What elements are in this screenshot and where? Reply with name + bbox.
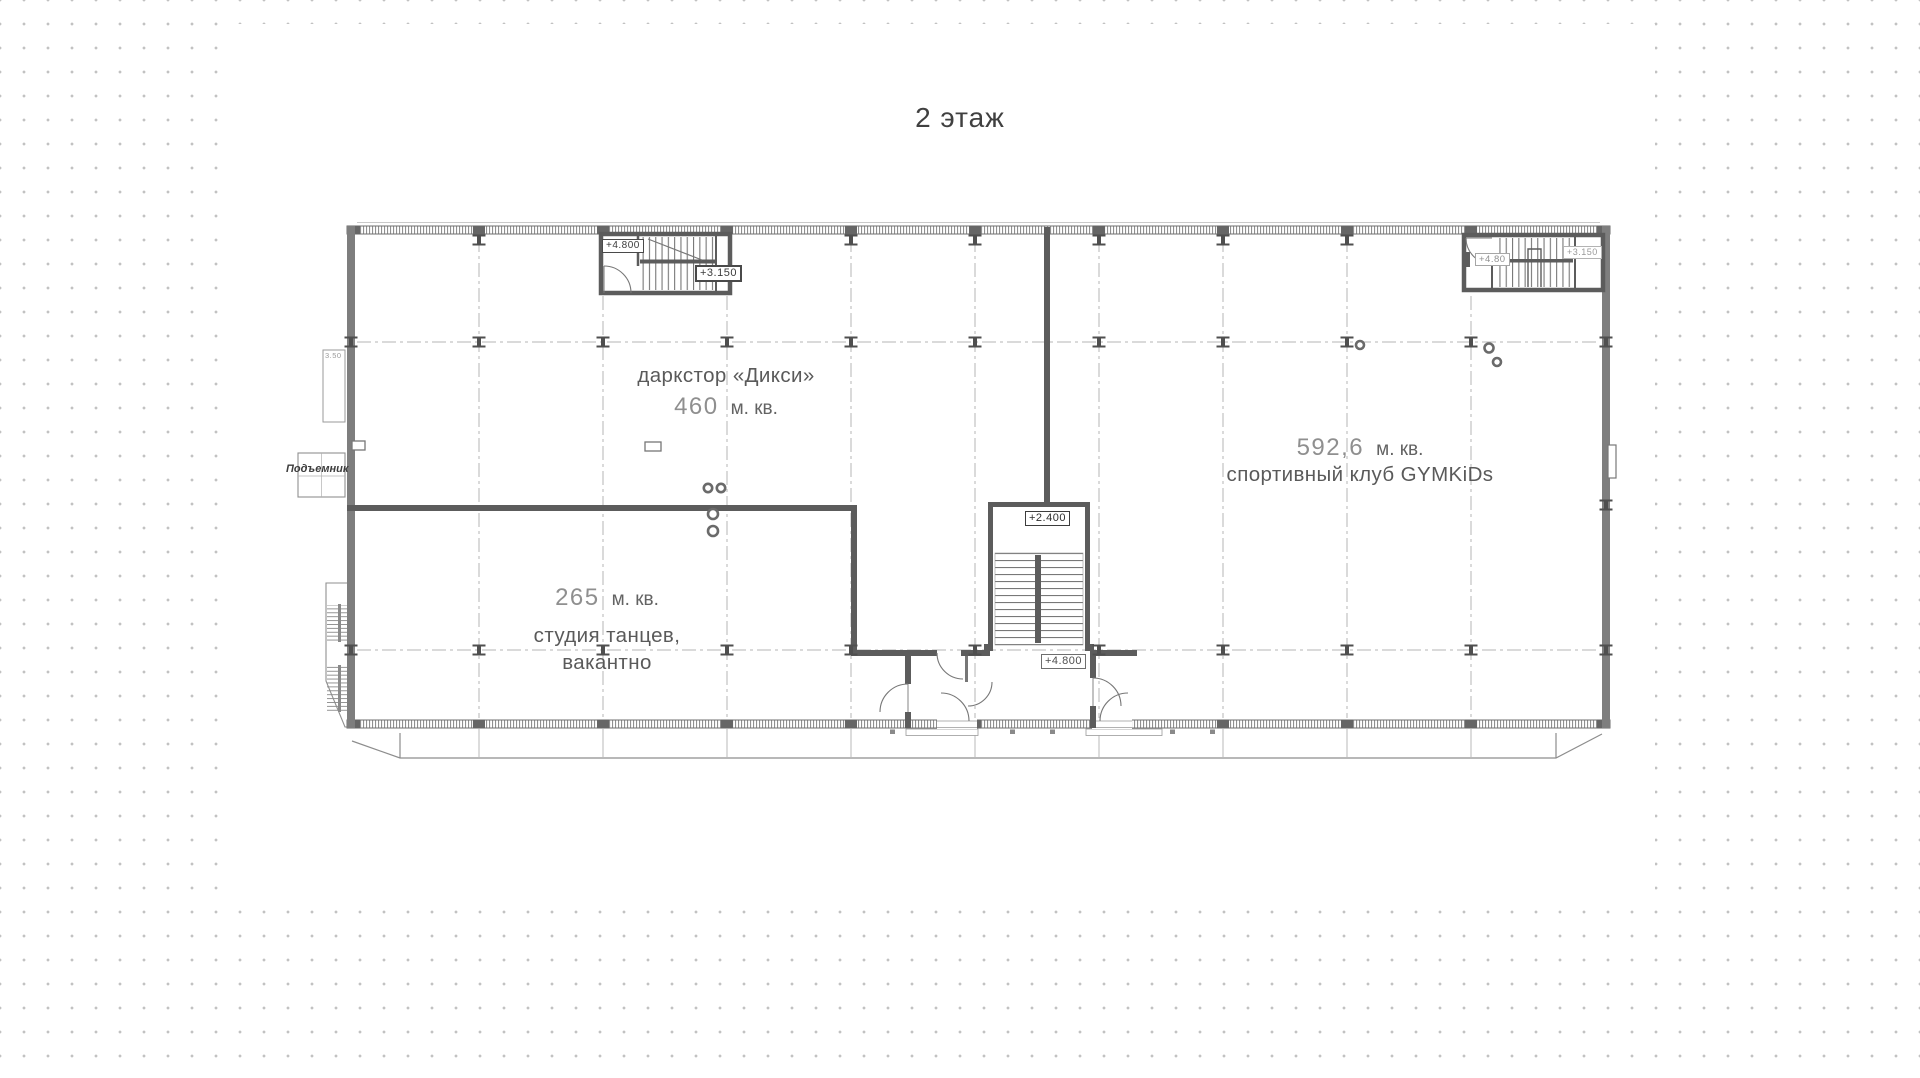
unit-label-dance-studio: 265м. кв. студия танцев, вакантно [477, 584, 737, 675]
unit-status: вакантно [477, 651, 737, 675]
floor-plan: 2 этаж [0, 0, 1920, 1078]
unit-name: студия танцев, [477, 624, 737, 648]
page: { "title": "2 этаж", "units": [ { "name"… [0, 0, 1920, 1078]
elevation-mark-tl-upper: +4.800 [602, 239, 644, 253]
entrance-porch-step [906, 729, 978, 736]
unit-name: спортивный клуб GYMKiDs [1195, 463, 1525, 487]
elevation-mark-center-upper: +2.400 [1025, 511, 1070, 526]
elevation-mark-tl-lower: +3.150 [695, 265, 742, 282]
unit-label-gymkids: 592,6м. кв. спортивный клуб GYMKiDs [1195, 434, 1525, 487]
partition-stubs [352, 441, 661, 451]
unit-label-dixy: даркстор «Дикси» 460м. кв. [586, 364, 866, 421]
lift-annotation: Подъемник [286, 463, 348, 475]
entrance-porch-step [1086, 729, 1162, 736]
right-wall-niche [1608, 445, 1616, 478]
elevation-mark-tr-upper: +4.80 [1475, 253, 1510, 266]
lift-box [298, 453, 345, 497]
unit-area-unit: м. кв. [731, 398, 778, 419]
elevation-mark-center-lower: +4.800 [1041, 654, 1086, 669]
unit-area-value: 265 [555, 584, 600, 611]
unit-area-unit: м. кв. [612, 589, 659, 610]
unit-area-value: 460 [674, 393, 719, 420]
floor-plan-drawing [0, 0, 1920, 1078]
interior-walls [347, 227, 1137, 728]
shaft-annotation: 3.50 [325, 351, 342, 360]
unit-area-unit: м. кв. [1376, 439, 1423, 460]
external-shaft-box [323, 350, 345, 422]
unit-name: даркстор «Дикси» [586, 364, 866, 388]
unit-area-value: 592,6 [1297, 434, 1365, 461]
canopy-outline [352, 729, 1602, 758]
elevation-mark-tr-lower: +3.150 [1563, 246, 1602, 259]
